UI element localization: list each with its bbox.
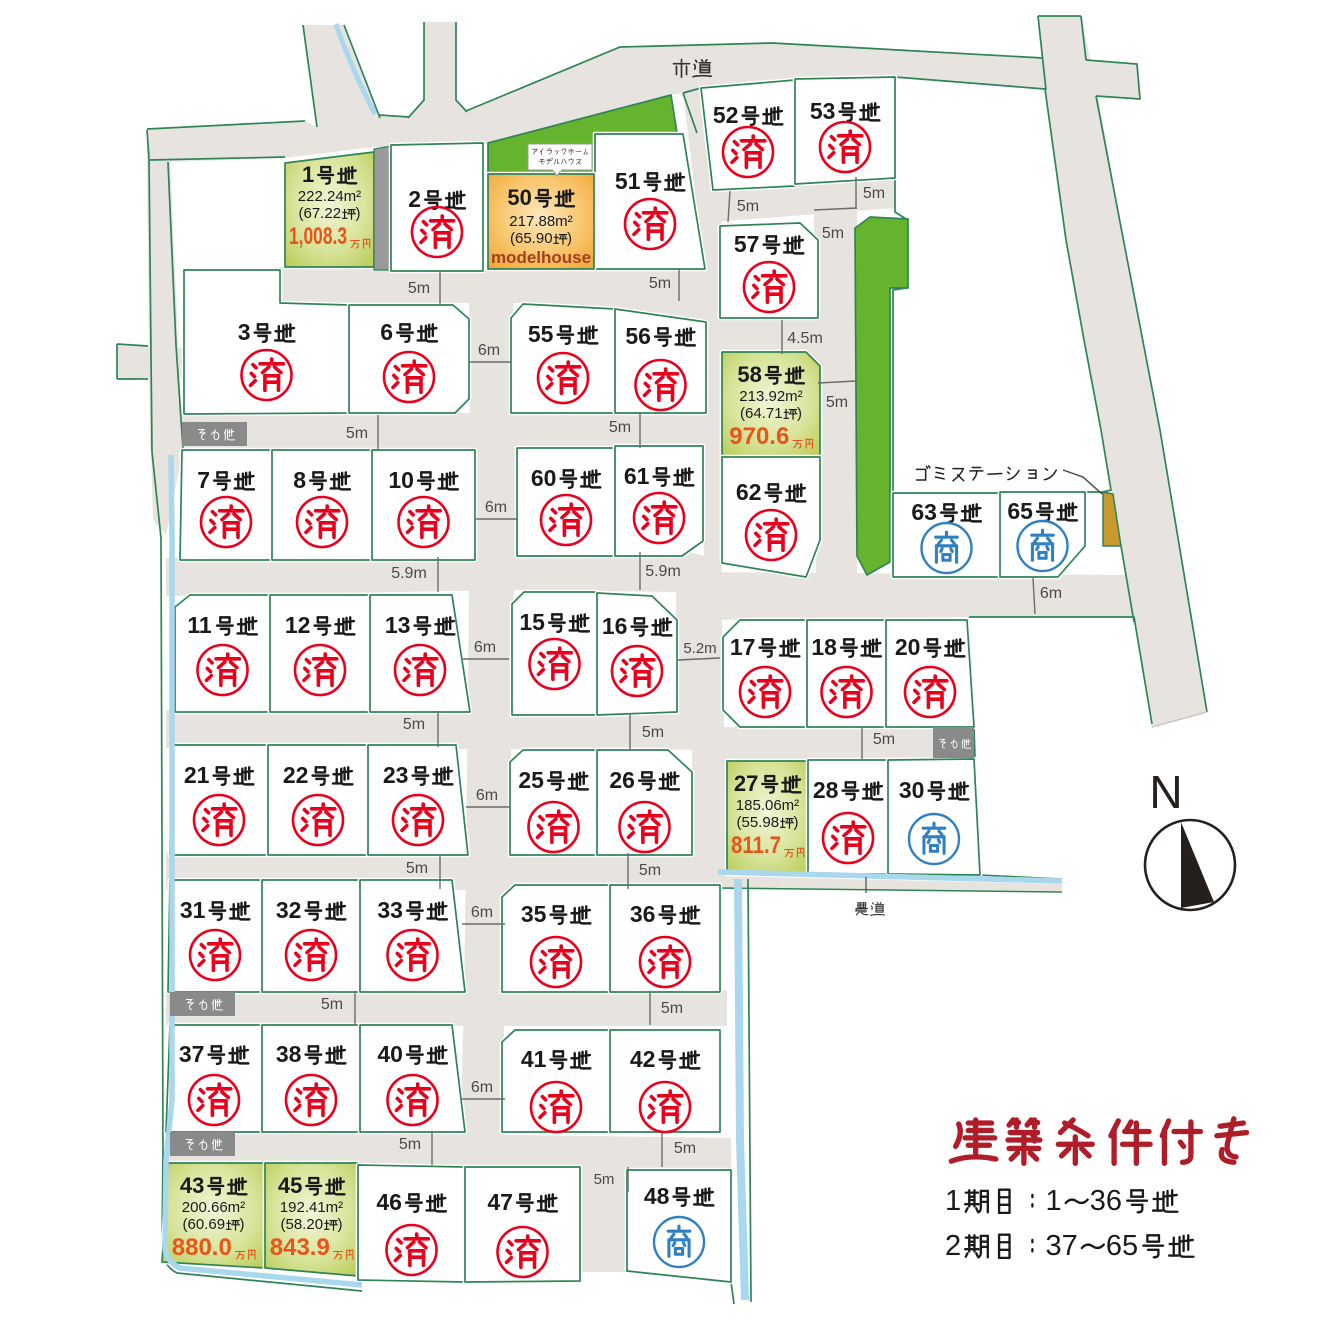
svg-text:35: 35 [521, 901, 547, 927]
svg-text:58: 58 [737, 362, 761, 387]
svg-text:32: 32 [276, 897, 302, 923]
svg-text:(55.98: (55.98 [737, 814, 780, 831]
svg-text:): ) [797, 405, 802, 422]
svg-text:1: 1 [302, 162, 314, 187]
svg-text:5m: 5m [873, 731, 895, 748]
svg-text:(58.20: (58.20 [281, 1216, 324, 1233]
svg-text:11: 11 [187, 612, 212, 638]
svg-text:880.0: 880.0 [172, 1234, 232, 1261]
svg-text:26: 26 [609, 767, 635, 793]
svg-text:22: 22 [283, 762, 309, 788]
svg-text:41: 41 [521, 1046, 547, 1072]
svg-text:27: 27 [734, 771, 758, 796]
svg-text:52: 52 [713, 102, 739, 128]
svg-text:1,008.3: 1,008.3 [289, 223, 347, 250]
svg-text:2: 2 [408, 186, 421, 212]
svg-text:40: 40 [377, 1041, 403, 1067]
svg-text:37: 37 [179, 1041, 205, 1067]
svg-text:6m: 6m [478, 342, 500, 359]
svg-text:217.88m²: 217.88m² [509, 213, 572, 230]
svg-text:5m: 5m [594, 1171, 615, 1188]
svg-text:23: 23 [383, 762, 409, 788]
svg-text:5m: 5m [674, 1140, 696, 1157]
svg-text:65: 65 [1106, 1230, 1138, 1262]
svg-text:15: 15 [519, 609, 545, 635]
svg-text:62: 62 [736, 479, 762, 505]
svg-text:3: 3 [238, 319, 251, 345]
svg-text:5.9m: 5.9m [391, 565, 427, 582]
svg-text:25: 25 [518, 767, 544, 793]
svg-text:6m: 6m [485, 499, 507, 516]
svg-text:811.7: 811.7 [731, 832, 781, 859]
svg-text:6m: 6m [471, 904, 493, 921]
svg-text:18: 18 [811, 634, 837, 660]
svg-text:7: 7 [197, 467, 210, 493]
svg-text:55: 55 [528, 321, 554, 347]
svg-text:5m: 5m [863, 185, 885, 202]
svg-text:970.6: 970.6 [729, 423, 789, 450]
svg-text:5.9m: 5.9m [645, 563, 681, 580]
svg-text:33: 33 [377, 897, 403, 923]
svg-text:5.2m: 5.2m [683, 640, 716, 657]
svg-text:17: 17 [730, 634, 756, 660]
svg-text:5m: 5m [737, 198, 759, 215]
svg-text:5m: 5m [826, 394, 848, 411]
svg-text:6m: 6m [471, 1079, 493, 1096]
svg-text:213.92m²: 213.92m² [739, 388, 802, 405]
svg-text:48: 48 [644, 1183, 670, 1209]
svg-text:65: 65 [1007, 498, 1033, 524]
svg-text:200.66m²: 200.66m² [182, 1199, 245, 1216]
svg-text:38: 38 [276, 1041, 302, 1067]
svg-text:5m: 5m [661, 1000, 683, 1017]
svg-text:5m: 5m [609, 419, 631, 436]
svg-text:5m: 5m [399, 1136, 421, 1153]
svg-text:36: 36 [1090, 1185, 1122, 1217]
svg-text:): ) [240, 1216, 245, 1233]
svg-text:185.06m²: 185.06m² [736, 797, 799, 814]
svg-text:5m: 5m [649, 275, 671, 292]
svg-text:57: 57 [734, 231, 760, 257]
svg-text:5m: 5m [639, 862, 661, 879]
svg-text:56: 56 [625, 323, 651, 349]
svg-text:5m: 5m [642, 724, 664, 741]
svg-text:12: 12 [285, 612, 311, 638]
svg-text:45: 45 [278, 1173, 302, 1198]
svg-text:): ) [794, 814, 799, 831]
svg-text:4.5m: 4.5m [787, 330, 823, 347]
svg-text:51: 51 [615, 168, 641, 194]
svg-text:modelhouse: modelhouse [491, 248, 591, 267]
svg-text:13: 13 [385, 612, 411, 638]
svg-text:28: 28 [813, 777, 839, 803]
svg-text:843.9: 843.9 [270, 1234, 330, 1261]
svg-text:8: 8 [293, 467, 306, 493]
svg-text:46: 46 [376, 1189, 402, 1215]
svg-text:2: 2 [945, 1230, 961, 1262]
svg-text:6m: 6m [476, 787, 498, 804]
svg-text:(60.69: (60.69 [183, 1216, 226, 1233]
svg-text:53: 53 [810, 98, 836, 124]
svg-text:47: 47 [487, 1189, 513, 1215]
svg-text:50: 50 [507, 185, 531, 210]
svg-text:60: 60 [531, 465, 557, 491]
svg-text:37: 37 [1046, 1230, 1078, 1262]
svg-text:5m: 5m [403, 716, 425, 733]
svg-text:6m: 6m [474, 639, 496, 656]
svg-text:): ) [356, 205, 361, 222]
svg-text:(64.71: (64.71 [740, 405, 783, 422]
svg-text:5m: 5m [321, 996, 343, 1013]
svg-text:36: 36 [630, 901, 656, 927]
svg-text:43: 43 [180, 1173, 204, 1198]
svg-text:(65.90: (65.90 [510, 230, 553, 247]
svg-text:20: 20 [895, 634, 921, 660]
svg-text:16: 16 [602, 613, 628, 639]
svg-text:222.24m²: 222.24m² [298, 188, 361, 205]
svg-text:1: 1 [945, 1185, 961, 1217]
svg-text:61: 61 [624, 463, 650, 489]
svg-text:30: 30 [899, 777, 925, 803]
svg-text:21: 21 [184, 762, 210, 788]
svg-text:): ) [338, 1216, 343, 1233]
svg-text:5m: 5m [346, 425, 368, 442]
svg-text:N: N [1149, 766, 1182, 818]
svg-text:31: 31 [180, 897, 206, 923]
svg-text:42: 42 [630, 1046, 656, 1072]
svg-text:): ) [567, 230, 572, 247]
svg-text:5m: 5m [406, 860, 428, 877]
svg-text:1: 1 [1046, 1185, 1062, 1217]
svg-text:5m: 5m [408, 280, 430, 297]
svg-text:10: 10 [388, 467, 414, 493]
svg-text:5m: 5m [822, 225, 844, 242]
svg-text:192.41m²: 192.41m² [280, 1199, 343, 1216]
svg-text:6: 6 [380, 319, 393, 345]
svg-text:6m: 6m [1040, 585, 1062, 602]
svg-text:63: 63 [911, 499, 937, 525]
svg-text:(67.22: (67.22 [299, 205, 342, 222]
